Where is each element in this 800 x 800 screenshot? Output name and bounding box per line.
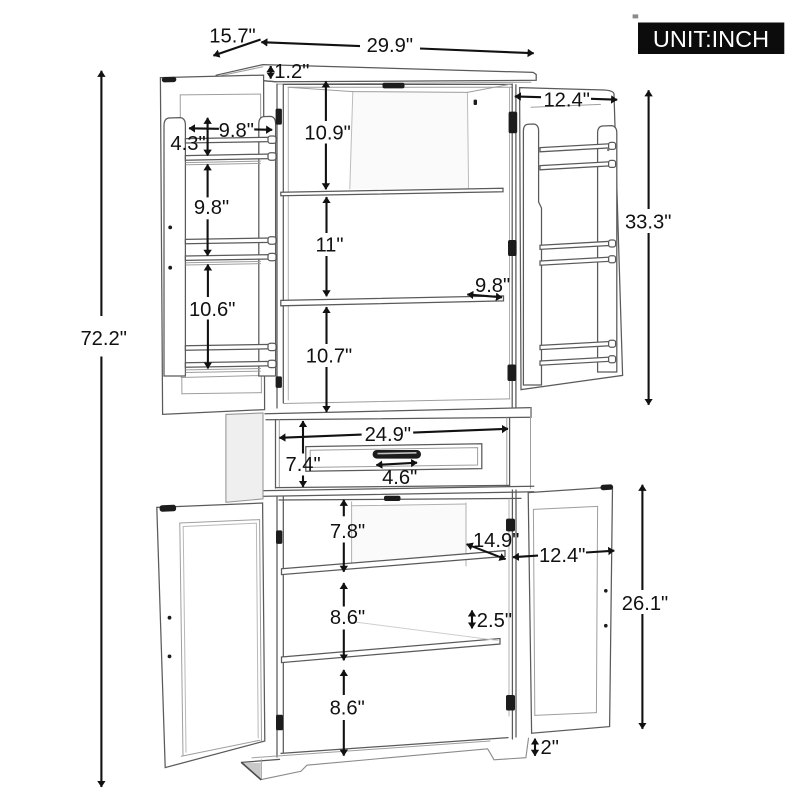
- svg-text:7.4": 7.4": [285, 454, 320, 476]
- svg-text:14.9": 14.9": [473, 530, 519, 552]
- svg-text:11": 11": [315, 235, 343, 257]
- svg-text:10.6": 10.6": [189, 299, 235, 321]
- svg-text:29.9": 29.9": [367, 35, 413, 57]
- svg-text:9.8": 9.8": [194, 197, 229, 219]
- svg-text:12.4": 12.4": [539, 545, 585, 567]
- svg-text:9.8": 9.8": [475, 275, 510, 297]
- svg-text:4.3": 4.3": [170, 133, 205, 155]
- svg-text:24.9": 24.9": [365, 424, 411, 446]
- svg-text:2.5": 2.5": [477, 610, 512, 632]
- svg-text:10.7": 10.7": [306, 346, 352, 368]
- svg-text:4.6": 4.6": [382, 467, 417, 489]
- svg-text:UNIT:INCH: UNIT:INCH: [653, 26, 769, 52]
- svg-text:12.4": 12.4": [543, 90, 589, 112]
- svg-text:15.7": 15.7": [209, 26, 255, 48]
- svg-text:1.2": 1.2": [274, 61, 309, 83]
- svg-text:9.8": 9.8": [219, 120, 254, 142]
- svg-text:8.6": 8.6": [330, 698, 365, 720]
- svg-text:2": 2": [541, 737, 559, 759]
- svg-text:33.3": 33.3": [625, 211, 671, 233]
- svg-text:8.6": 8.6": [330, 607, 365, 629]
- svg-text:7.8": 7.8": [330, 521, 365, 543]
- svg-text:10.9": 10.9": [304, 122, 350, 144]
- svg-text:26.1": 26.1": [622, 593, 668, 615]
- svg-text:72.2": 72.2": [80, 328, 126, 350]
